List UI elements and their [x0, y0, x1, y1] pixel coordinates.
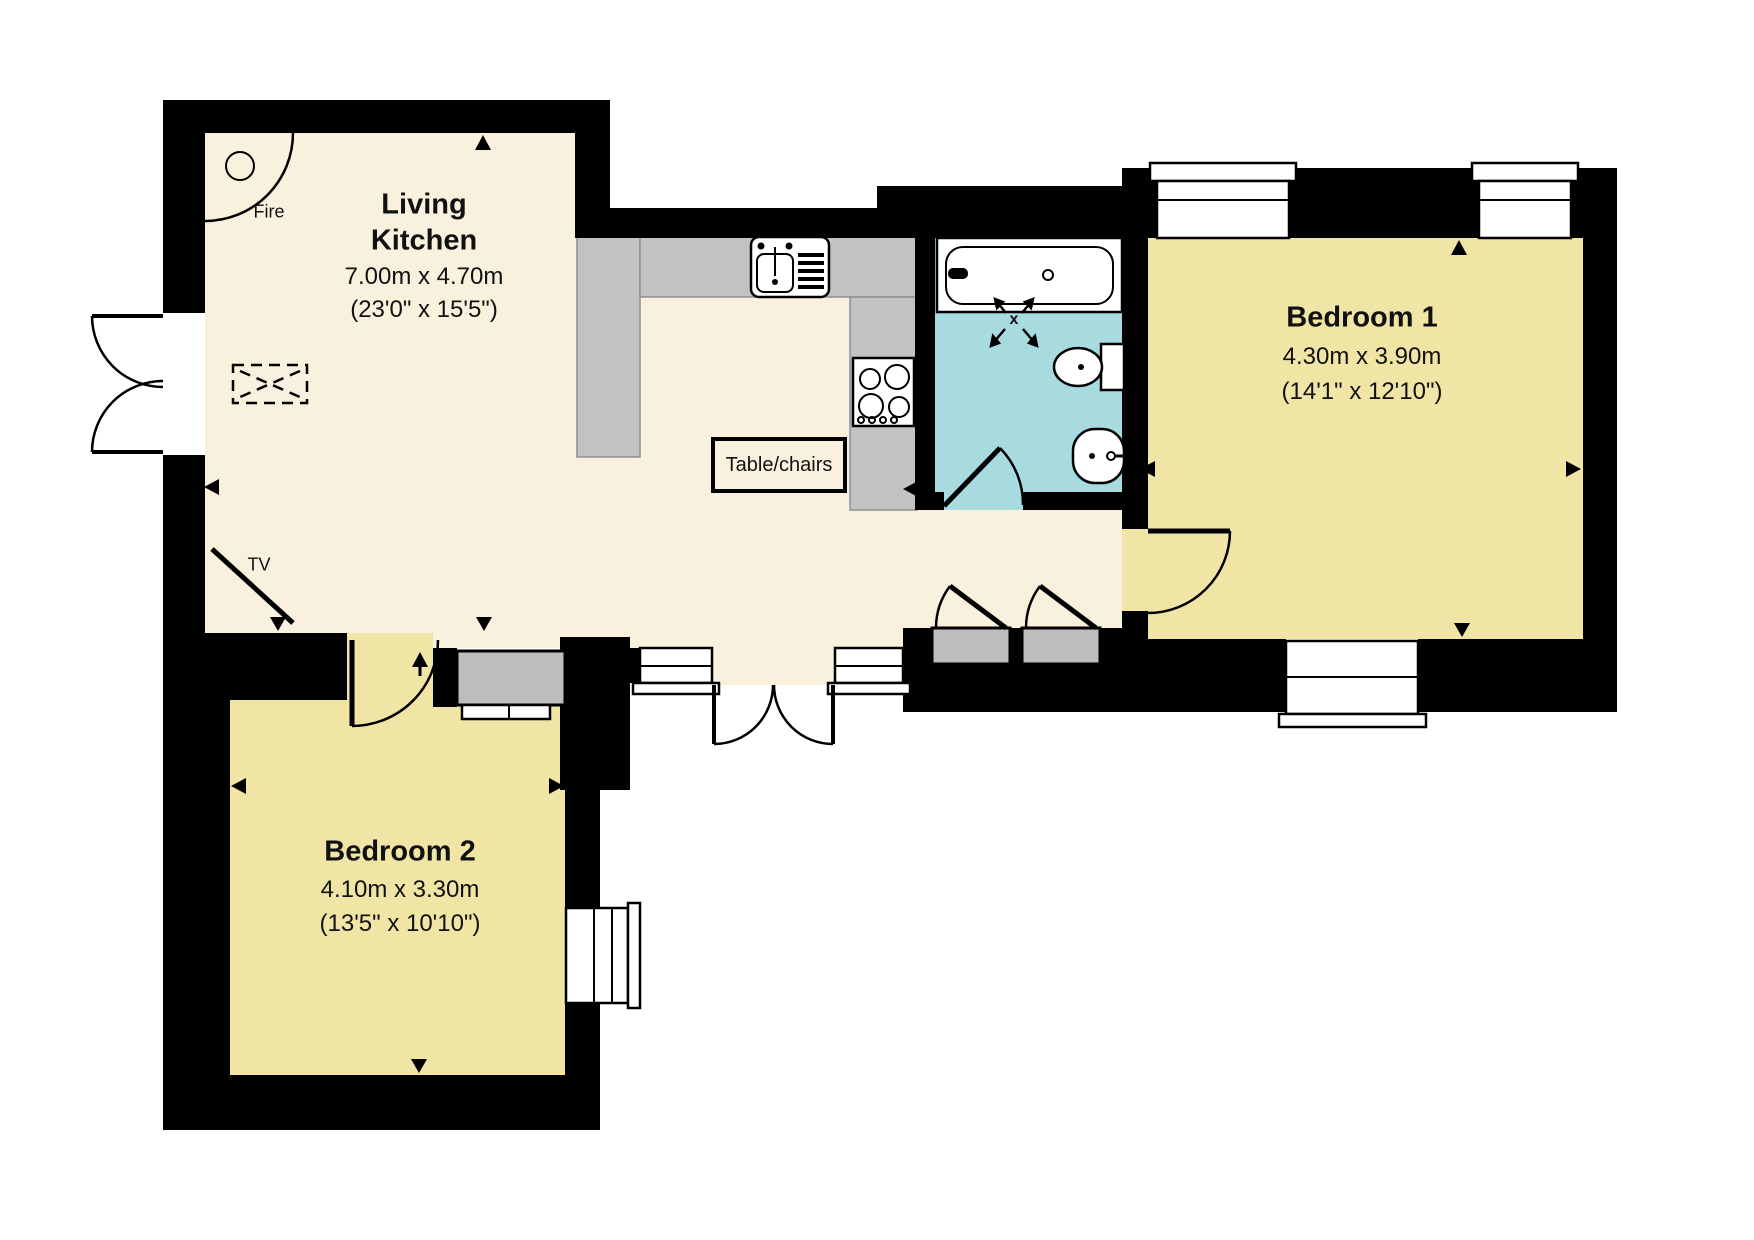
- bedroom-1-dims-metric: 4.30m x 3.90m: [1283, 343, 1442, 371]
- bedroom-2-east-window: [566, 908, 628, 1003]
- sink-tap-handle: [758, 243, 765, 250]
- bath-tap: [948, 268, 968, 279]
- wall: [163, 100, 610, 133]
- bedroom-2-name: Bedroom 2: [324, 836, 475, 869]
- hall-cupboard-left: [932, 628, 1010, 664]
- living-kitchen-dims-metric: 7.00m x 4.70m: [345, 263, 504, 291]
- hall-cupboard-right: [1022, 628, 1100, 664]
- bedroom-2-cupboard-sill: [462, 705, 550, 719]
- wall: [915, 235, 935, 510]
- fire-label: Fire: [254, 202, 285, 223]
- wall: [610, 208, 877, 238]
- bedroom-1-door-threshold: [1122, 529, 1148, 611]
- french-door-arc-bottom: [92, 381, 163, 452]
- wall: [1122, 238, 1148, 529]
- french-door-arc-top: [92, 316, 163, 387]
- kitchen-counter-left: [577, 235, 640, 457]
- living-south-window-right-sill: [828, 683, 910, 694]
- bedroom-2-dims-metric: 4.10m x 3.30m: [321, 876, 480, 904]
- floor-plan: Living Kitchen 7.00m x 4.70m (23'0" x 15…: [0, 0, 1754, 1240]
- bedroom-2-dims-imperial: (13'5" x 10'10"): [320, 910, 481, 938]
- living-kitchen-name-line2: Kitchen: [371, 225, 477, 258]
- toilet-drain: [1078, 364, 1084, 370]
- wall: [1122, 611, 1148, 641]
- wall: [933, 492, 944, 510]
- bedroom-1-north-window-sill: [1150, 163, 1296, 181]
- living-south-window-left-sill: [633, 683, 719, 694]
- wall: [163, 660, 230, 1130]
- living-kitchen-name-line1: Living: [381, 189, 466, 222]
- wall: [565, 790, 600, 908]
- basin-drain: [1089, 453, 1095, 459]
- bedroom-1-south-window-sill: [1279, 714, 1426, 727]
- bedroom-2-east-window-sill: [628, 903, 640, 1008]
- shower-x-label: x: [1010, 311, 1019, 329]
- bedroom-1-north-window-right: [1479, 181, 1571, 238]
- wall: [1583, 200, 1617, 712]
- wall: [1023, 492, 1122, 510]
- bedroom-1-north-window-left: [1157, 181, 1289, 238]
- bedroom-2-cupboard: [457, 651, 565, 705]
- wall: [575, 100, 610, 238]
- table-chairs-box: Table/chairs: [711, 437, 847, 493]
- floor-plan-drawing: [0, 0, 1754, 1240]
- wall: [163, 100, 205, 313]
- entrance-door-arc-left: [714, 685, 773, 744]
- bedroom-1-dims-imperial: (14'1" x 12'10"): [1282, 378, 1443, 406]
- sink-drain: [772, 279, 778, 285]
- wall: [877, 186, 1148, 238]
- toilet-cistern: [1101, 344, 1124, 390]
- entrance-doorway-opening: [712, 648, 835, 685]
- wall: [1122, 639, 1286, 712]
- tv-label: TV: [247, 555, 270, 576]
- sink-tap-handle: [786, 243, 793, 250]
- entrance-door-arc-right: [774, 685, 833, 744]
- wall: [163, 633, 347, 700]
- bedroom-1-north-window-sill2: [1472, 163, 1578, 181]
- wall: [163, 1075, 600, 1130]
- bedroom-1-name: Bedroom 1: [1286, 302, 1437, 335]
- table-chairs-label: Table/chairs: [726, 454, 833, 477]
- living-kitchen-dims-imperial: (23'0" x 15'5"): [350, 296, 498, 324]
- wall: [1418, 639, 1617, 712]
